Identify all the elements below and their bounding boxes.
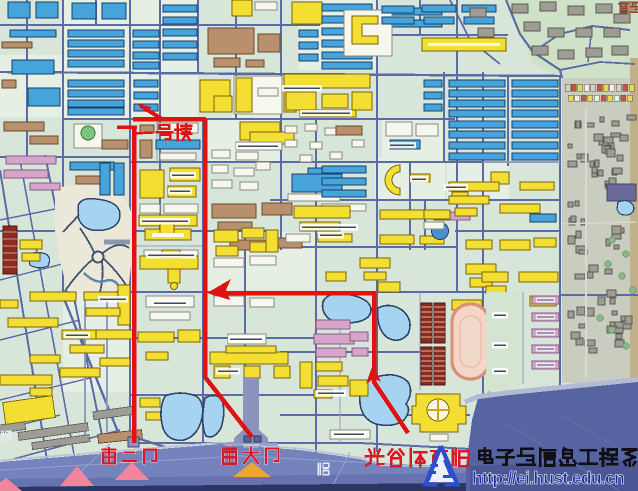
svg-text:http://ei.hust.edu.cn: http://ei.hust.edu.cn bbox=[472, 468, 625, 488]
